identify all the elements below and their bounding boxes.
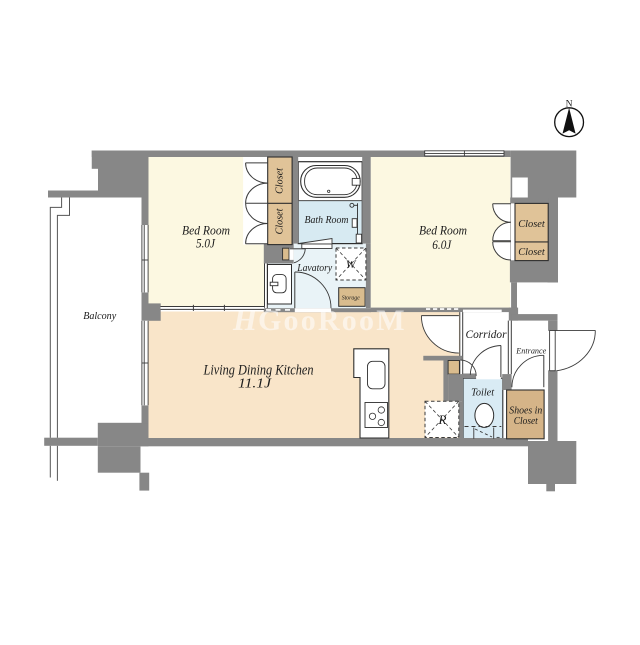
- svg-text:N: N: [566, 100, 573, 110]
- svg-text:Lavatory: Lavatory: [296, 263, 333, 274]
- svg-text:Bath Room: Bath Room: [305, 215, 349, 226]
- svg-text:Balcony: Balcony: [83, 311, 116, 322]
- svg-text:6.0J: 6.0J: [432, 238, 452, 252]
- svg-text:Entrance: Entrance: [515, 346, 546, 356]
- svg-text:11.1J: 11.1J: [238, 376, 272, 391]
- svg-text:H: H: [232, 302, 258, 337]
- svg-text:Bed Room: Bed Room: [182, 223, 230, 238]
- svg-text:5.0J: 5.0J: [196, 237, 216, 251]
- svg-text:GooRooM: GooRooM: [258, 304, 407, 337]
- svg-text:Bed Room: Bed Room: [419, 223, 467, 238]
- svg-text:Closet: Closet: [275, 168, 286, 194]
- svg-text:Closet: Closet: [275, 208, 286, 234]
- svg-text:Closet: Closet: [518, 247, 545, 258]
- svg-text:Storage: Storage: [342, 295, 360, 302]
- svg-text:R: R: [438, 412, 447, 427]
- svg-text:W: W: [346, 259, 357, 271]
- svg-text:Shoes in: Shoes in: [509, 405, 542, 416]
- svg-text:Closet: Closet: [514, 416, 539, 427]
- svg-text:Closet: Closet: [518, 219, 545, 230]
- svg-text:Toilet: Toilet: [471, 387, 495, 398]
- svg-text:Corridor: Corridor: [466, 327, 507, 341]
